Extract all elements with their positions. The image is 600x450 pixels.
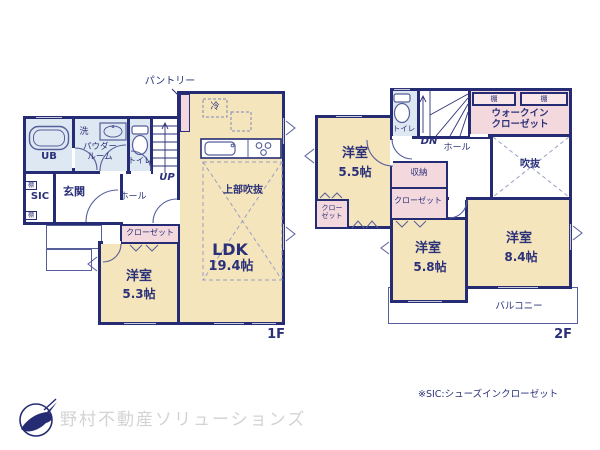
room-ldk xyxy=(177,91,285,325)
wic-shelf-left: 棚 xyxy=(472,92,516,106)
company-name: 野村不動産ソリューションズ xyxy=(60,410,300,430)
ub-label: UB xyxy=(29,151,69,163)
room55-label: 洋室 xyxy=(320,146,390,162)
room84-size: 8.4帖 xyxy=(486,250,556,264)
opening-toilet2f-door xyxy=(392,136,412,139)
laundry-label: 洗 xyxy=(76,127,92,138)
opening-hall2f xyxy=(448,161,490,164)
storage-2f-label: 収納 xyxy=(395,168,443,178)
floor2-label: 2F xyxy=(532,327,572,343)
balcony-label: バルコニー xyxy=(479,301,559,312)
hall-2f-label: ホール xyxy=(432,143,482,154)
sic-footnote: ※SIC:シューズインクローゼット xyxy=(418,389,578,400)
opening-yo53-door xyxy=(103,241,121,244)
toilet-1f-label: トイレ xyxy=(124,156,156,166)
opening-84-door xyxy=(449,197,466,200)
wic-shelf-right-label: 棚 xyxy=(541,95,548,103)
powder-line1: パウダー xyxy=(83,142,117,152)
room58-size: 5.8帖 xyxy=(395,260,465,274)
company-logo-icon xyxy=(20,399,57,436)
wic-line2: クローゼット xyxy=(491,119,548,130)
floor1-label: 1F xyxy=(245,327,285,343)
opening-powder-door xyxy=(100,171,126,174)
opening-yo55-door xyxy=(390,140,393,166)
toilet-2f-label: トイレ xyxy=(388,124,420,133)
sic-shelf-bottom-label: 棚 xyxy=(28,212,34,219)
hall-1f-label: ホール xyxy=(108,192,158,203)
void-2f-label: 吹抜 xyxy=(500,159,560,171)
room84-label: 洋室 xyxy=(484,231,554,247)
wic-line1: ウォークイン xyxy=(491,108,548,119)
floor-plan-canvas: 棚 棚 棚 棚 xyxy=(0,0,600,450)
stairs-2f xyxy=(417,88,471,139)
room53-label: 洋室 xyxy=(104,269,174,285)
wic-shelf-left-label: 棚 xyxy=(491,95,498,103)
upper-void-label: 上部吹抜 xyxy=(203,185,283,197)
ldk-label: LDK xyxy=(195,240,265,259)
powder-room-label: パウダー ルーム xyxy=(76,142,124,162)
opening-genkan-hall xyxy=(120,200,123,222)
sic-shelf-top: 棚 xyxy=(25,181,37,190)
closet-small-line1: クロー xyxy=(322,204,343,212)
room55-size: 5.5帖 xyxy=(320,165,390,179)
sic-shelf-bottom: 棚 xyxy=(25,211,37,220)
opening-ub-door xyxy=(72,148,75,168)
opening-wic-hall xyxy=(470,134,488,137)
porch-step-1 xyxy=(46,225,102,249)
closet-2f-small-label: クロー ゼット xyxy=(317,204,347,221)
room-hall-2f-lower xyxy=(445,161,493,200)
wic-shelf-right: 棚 xyxy=(520,92,568,106)
room-unit-bath xyxy=(23,116,75,174)
room58-label: 洋室 xyxy=(393,241,463,257)
powder-line2: ルーム xyxy=(87,152,112,162)
fridge-label: 冷 xyxy=(203,102,227,113)
wic-label: ウォークイン クローゼット xyxy=(471,108,569,131)
closet-1f-label: クローゼット xyxy=(122,228,178,238)
closet-2f-label: クローゼット xyxy=(390,196,446,206)
sic-shelf-top-label: 棚 xyxy=(28,182,34,189)
ldk-size: 19.4帖 xyxy=(191,259,271,275)
porch-step-2 xyxy=(46,249,92,271)
stairs-up-label: UP xyxy=(150,172,184,184)
closet-small-line2: ゼット xyxy=(322,212,343,220)
room53-size: 5.3帖 xyxy=(104,287,174,301)
genkan-label: 玄関 xyxy=(51,185,97,198)
opening-hall-ldk xyxy=(177,200,180,224)
opening-toilet1f-door xyxy=(131,171,151,174)
pantry-strip xyxy=(180,94,190,132)
pantry-label: パントリー xyxy=(130,76,210,88)
